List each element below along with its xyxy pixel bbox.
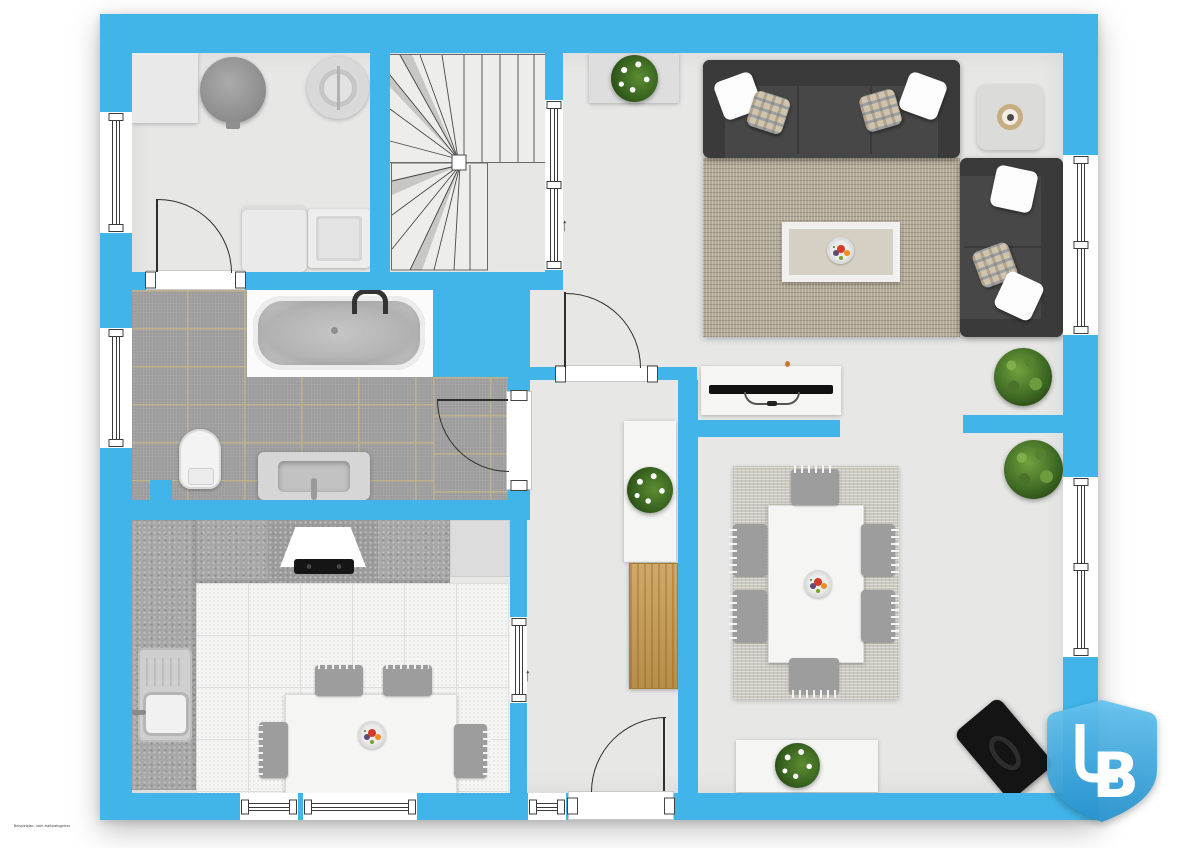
wall-utility-stairs	[370, 53, 390, 272]
logo-letter-b: B	[1092, 739, 1139, 812]
fruit-bowl	[358, 721, 386, 749]
dining-chair	[789, 658, 839, 694]
sofa-armrest	[938, 60, 960, 158]
disclaimer-text: Beispielplan, nicht maßstabsgetreu	[14, 824, 70, 828]
dining-chair	[733, 524, 767, 576]
window-kitchen-bottom-1	[240, 793, 298, 820]
bathtub-faucet-icon	[352, 289, 388, 314]
decor-tray-center	[1007, 114, 1014, 121]
wall-bath-kitchen	[100, 500, 530, 520]
sink-drainboard	[146, 658, 184, 686]
vanity-faucet-icon	[311, 478, 317, 500]
flower-plant	[775, 743, 820, 788]
window-kitchen-hall-interior	[510, 617, 527, 703]
toilet-seat	[188, 468, 214, 485]
window-dining-right	[1063, 477, 1098, 657]
bathtub	[253, 296, 425, 370]
window-utility-left	[100, 112, 132, 233]
window-stairs-living-interior	[545, 100, 563, 270]
kitchen-chair	[259, 722, 288, 778]
washing-machine	[242, 206, 307, 272]
stairs-landing	[489, 164, 546, 270]
kitchen-chair	[315, 665, 363, 696]
kitchen-chair	[454, 724, 487, 778]
wall-block-center	[433, 272, 530, 377]
tall-cabinet	[450, 520, 510, 577]
window-bath-left	[100, 328, 132, 448]
flower-plant	[611, 55, 658, 102]
dining-chair	[861, 524, 895, 576]
window-entry-sidelight	[528, 793, 566, 820]
wall-living-door-left	[530, 367, 558, 380]
storage-cabinet	[132, 53, 198, 123]
sofa-seam	[797, 86, 799, 154]
floor-plan-canvas: ↑ ↑ B Beispielplan, nicht maßstabsgetreu	[0, 0, 1200, 848]
cooktop	[294, 559, 354, 574]
wall-living-door-right	[655, 367, 697, 380]
sink-basin	[143, 692, 189, 736]
stair-newel-post	[452, 155, 466, 170]
stair-direction-arrow: ↑	[562, 216, 568, 235]
dining-chair	[861, 590, 895, 642]
sofa-armrest	[960, 319, 1063, 337]
door-opening-bathroom	[506, 391, 532, 490]
sink-faucet-icon	[130, 710, 146, 715]
wooden-dresser	[629, 563, 678, 689]
water-tank	[200, 57, 266, 123]
dining-chair	[733, 590, 767, 642]
fruit-bowl	[827, 237, 854, 264]
wall-living-dining	[697, 420, 840, 437]
sofa-backrest	[1041, 158, 1063, 337]
water-tank-foot	[226, 121, 240, 129]
boiler-line	[337, 66, 340, 110]
potted-plant	[994, 348, 1052, 406]
kitchen-chair	[383, 665, 432, 696]
dining-chair	[791, 469, 839, 505]
dryer-door	[316, 216, 362, 261]
winder-staircase	[388, 53, 548, 272]
candle-decor	[785, 361, 790, 367]
wall-top	[100, 14, 1098, 53]
hall-direction-arrow: ↑	[525, 666, 531, 685]
tv-base	[767, 401, 777, 406]
wall-bath-notch	[150, 480, 172, 500]
potted-plant	[1004, 440, 1063, 499]
flower-plant	[627, 467, 673, 513]
window-kitchen-bottom-2	[303, 793, 417, 820]
company-logo: B	[1040, 698, 1164, 824]
bathtub-drain	[331, 327, 338, 334]
door-opening-entrance	[568, 791, 674, 820]
door-opening-utility	[146, 270, 245, 290]
wall-stub-right	[963, 415, 1063, 433]
wall-hall-dining	[678, 380, 698, 793]
throw-pillow	[989, 164, 1039, 214]
window-living-right	[1063, 155, 1098, 335]
fruit-bowl	[804, 570, 832, 598]
